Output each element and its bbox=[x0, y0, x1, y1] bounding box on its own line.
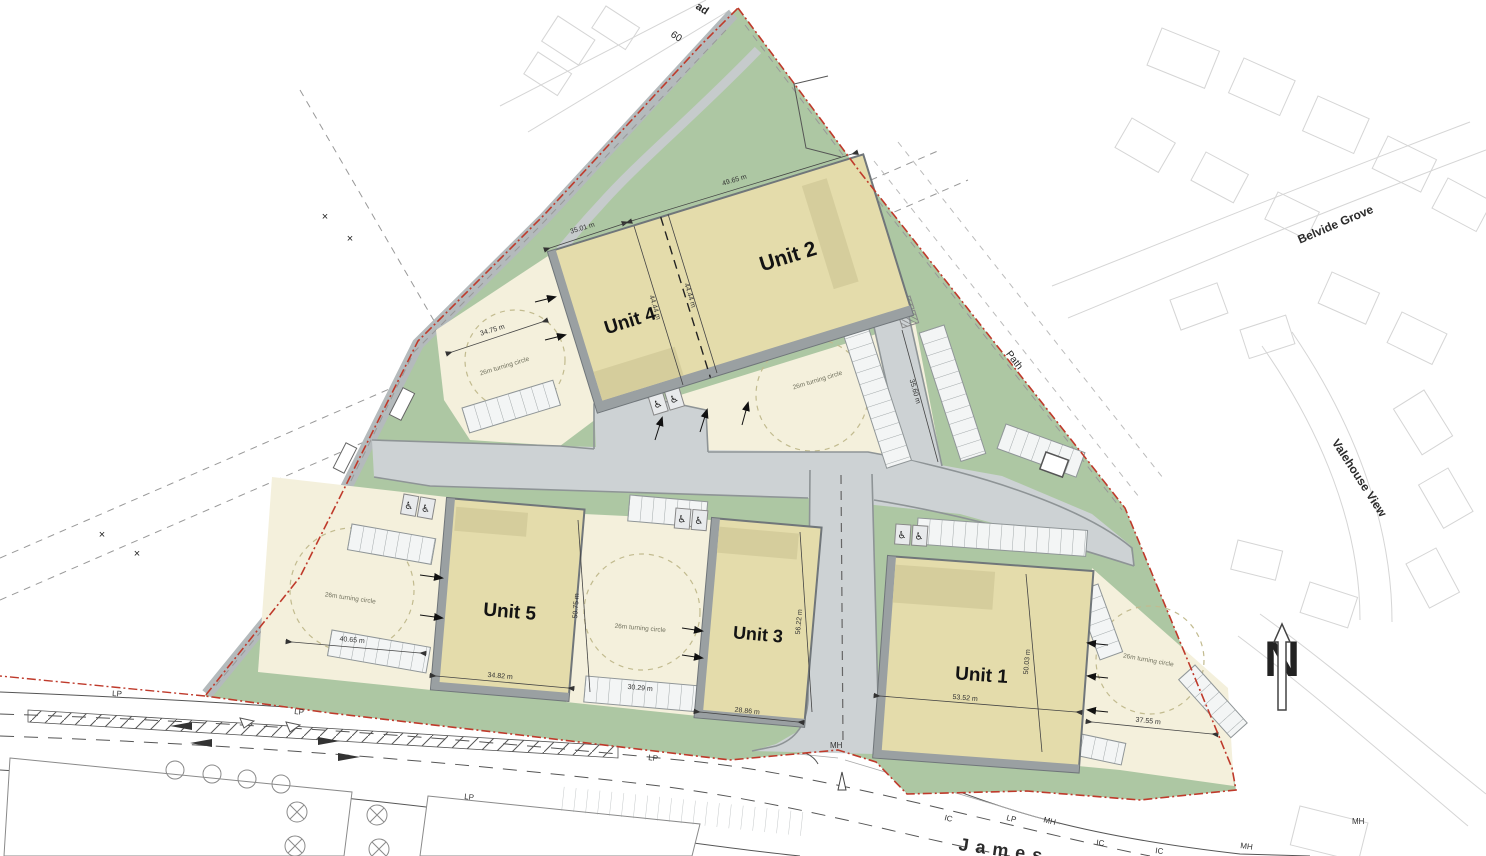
north-arrow: N bbox=[1264, 624, 1300, 710]
house-number: 60 bbox=[668, 29, 684, 45]
utility-marker-lp: LP bbox=[294, 707, 305, 717]
utility-marker-mh: MH bbox=[1352, 817, 1365, 826]
street-label-road-fragment: ad bbox=[693, 0, 710, 17]
svg-text:♿: ♿ bbox=[914, 531, 924, 543]
give-way-arrow bbox=[838, 772, 846, 790]
street-label-valehouse-view: Valehouse View bbox=[1329, 436, 1390, 520]
site-plan-drawing: × × × × bbox=[0, 0, 1486, 856]
svg-text:♿: ♿ bbox=[694, 516, 704, 528]
utility-marker-lp: LP bbox=[464, 792, 475, 802]
site-plan-canvas: × × × × bbox=[0, 0, 1486, 856]
unit-5-building: Unit 5 bbox=[431, 498, 585, 701]
utility-marker-lp: LP bbox=[112, 689, 122, 699]
svg-text:♿: ♿ bbox=[677, 514, 687, 526]
lane-arrow-right bbox=[338, 753, 360, 761]
tree-icon bbox=[367, 805, 387, 825]
svg-text:×: × bbox=[322, 211, 328, 223]
utility-marker-ic: IC bbox=[1155, 846, 1164, 856]
svg-text:×: × bbox=[134, 548, 140, 560]
svg-text:♿: ♿ bbox=[897, 530, 907, 542]
svg-text:×: × bbox=[347, 233, 353, 245]
unit-1-label: Unit 1 bbox=[954, 663, 1009, 688]
unit-5-label: Unit 5 bbox=[482, 599, 537, 624]
utility-marker-lp: LP bbox=[648, 753, 659, 763]
svg-text:×: × bbox=[99, 529, 105, 541]
street-label-james: James bbox=[957, 834, 1050, 856]
utility-marker-ic: IC bbox=[944, 813, 954, 824]
utility-marker-mh: MH bbox=[830, 741, 843, 750]
lane-arrow-left bbox=[190, 739, 212, 747]
svg-text:♿: ♿ bbox=[420, 503, 431, 515]
unit-1-building: Unit 1 bbox=[873, 556, 1093, 773]
utility-marker-mh: MH bbox=[1043, 815, 1057, 827]
utility-marker-lp: LP bbox=[1006, 813, 1018, 824]
svg-text:♿: ♿ bbox=[404, 500, 415, 512]
utility-marker-ic: IC bbox=[1096, 838, 1105, 848]
unit-1-canopy bbox=[893, 565, 996, 610]
tree-icon bbox=[369, 839, 389, 856]
utility-marker-mh: MH bbox=[1240, 841, 1254, 852]
